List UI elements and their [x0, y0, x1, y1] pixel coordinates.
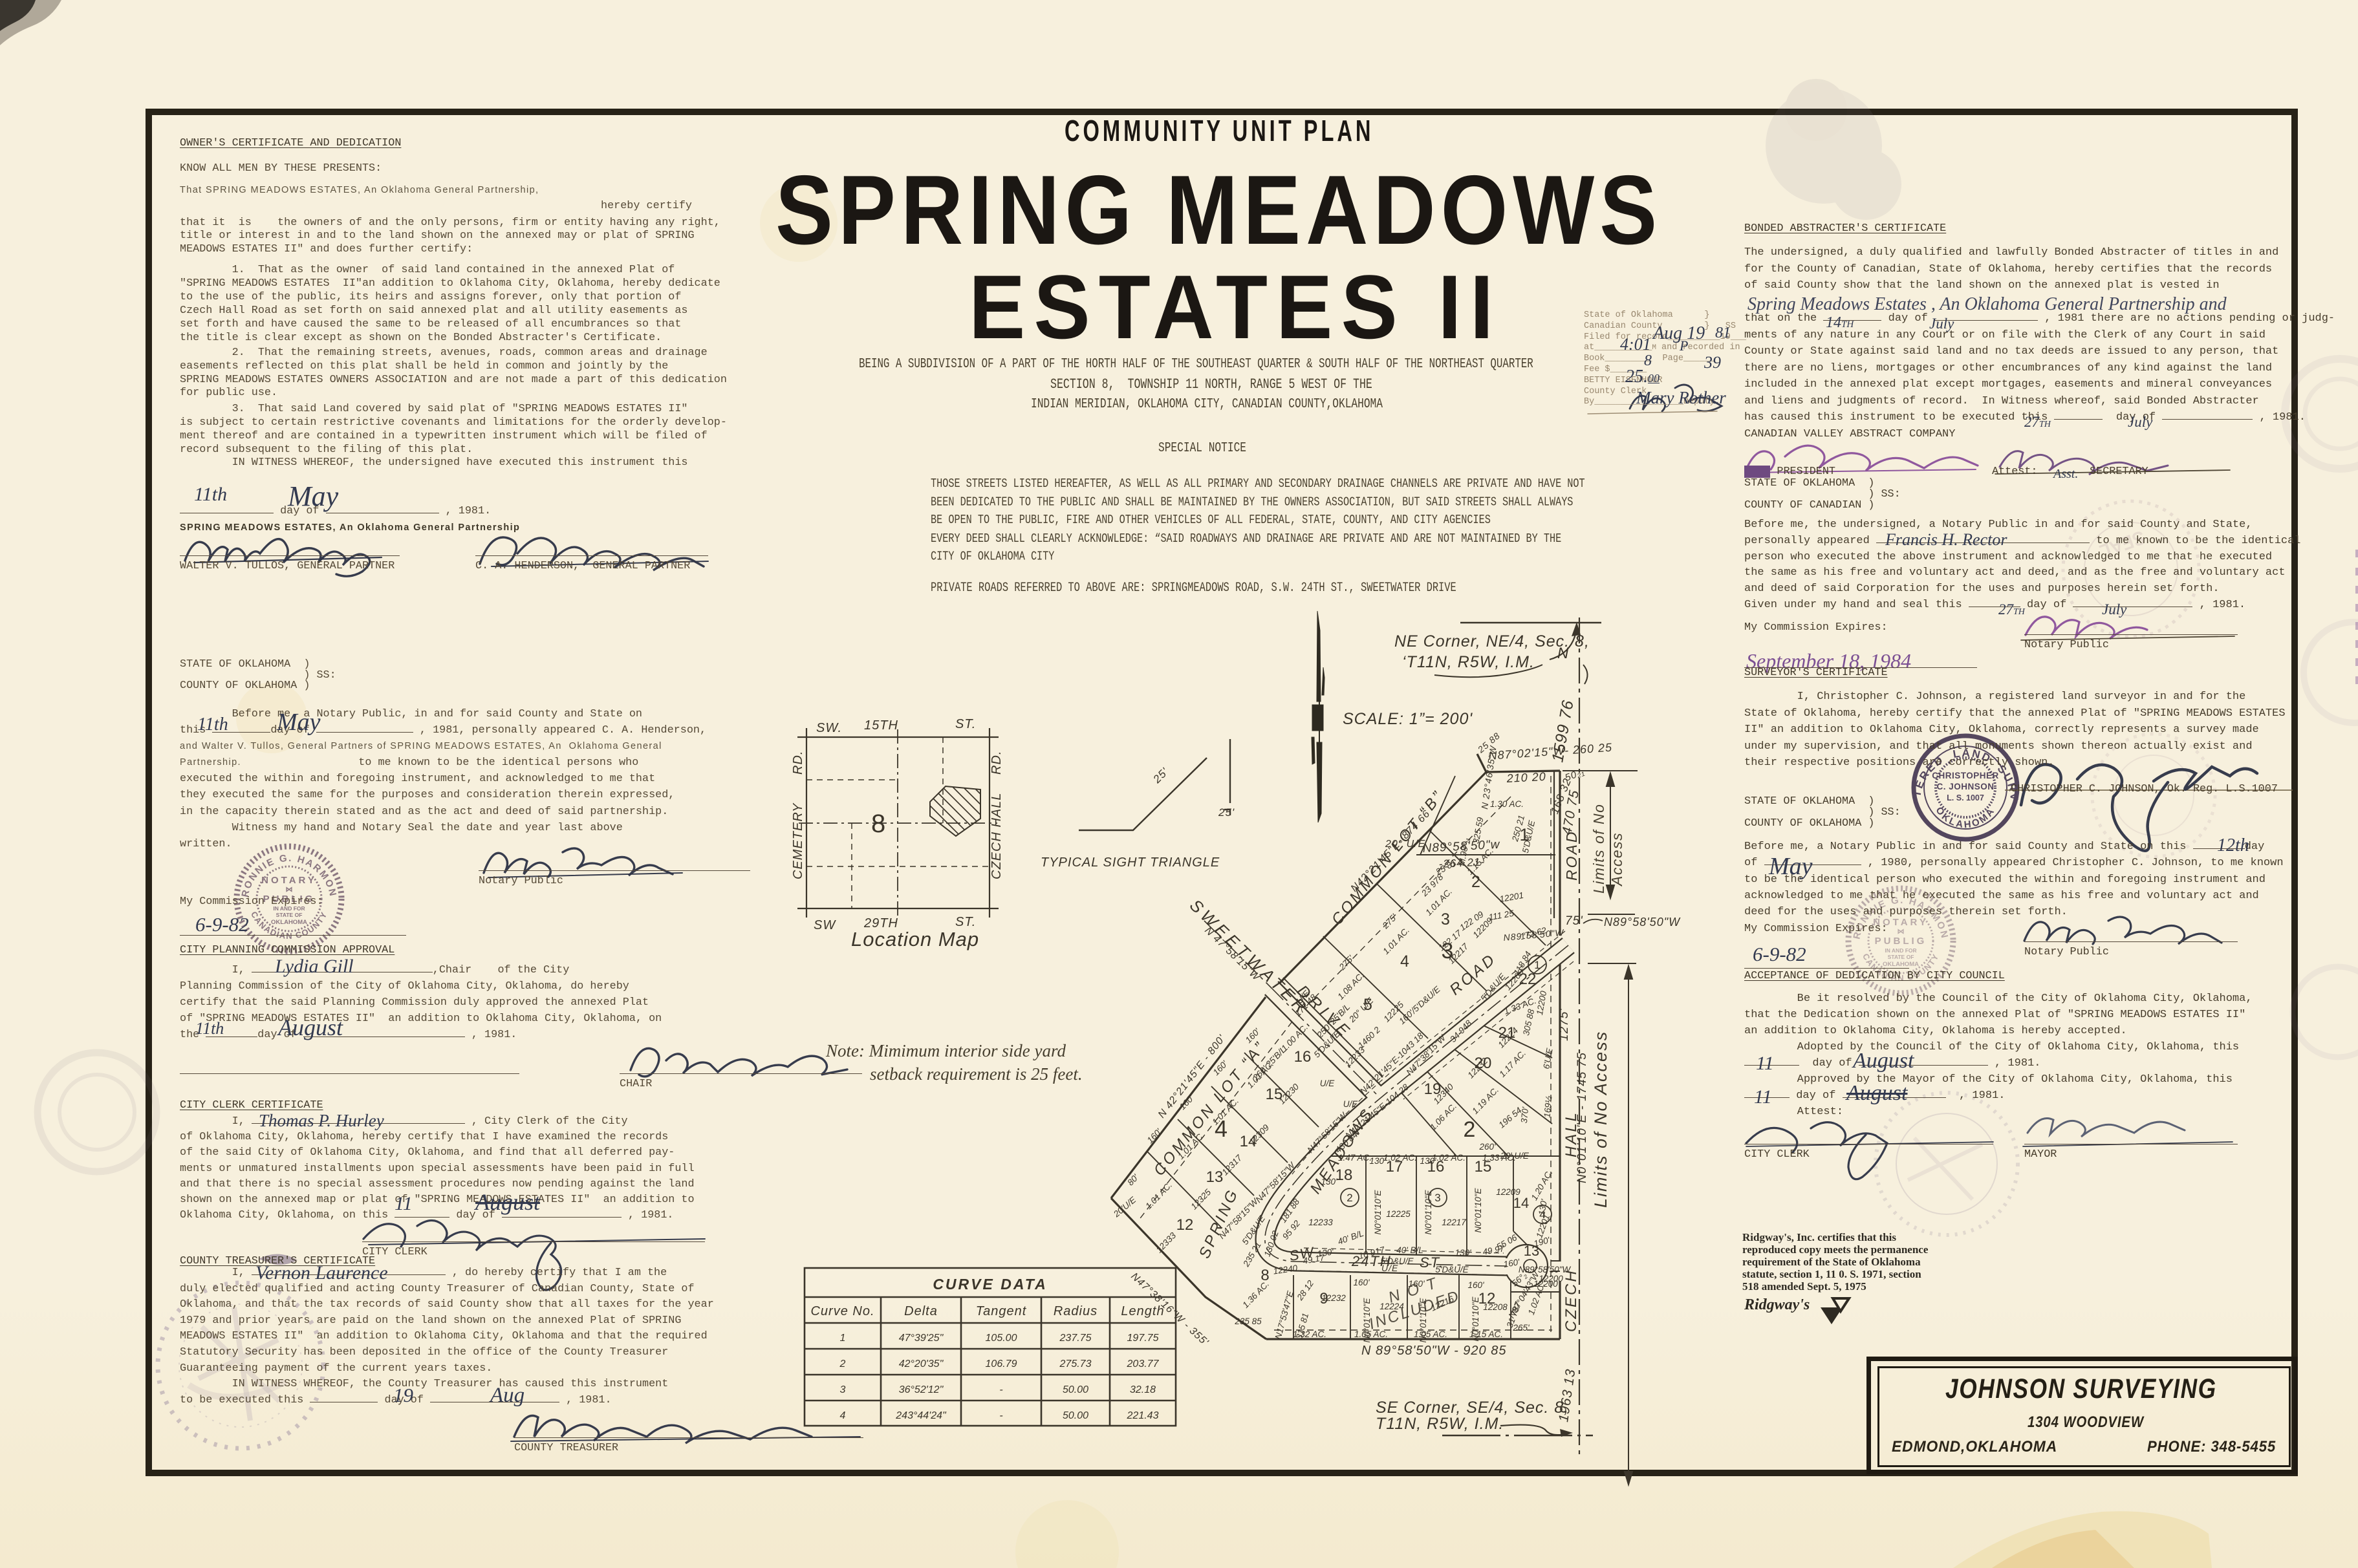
- svg-text:CURVE DATA: CURVE DATA: [933, 1276, 1047, 1293]
- svg-text:49 97: 49 97: [1482, 1243, 1505, 1257]
- svg-text:Radius: Radius: [1054, 1304, 1098, 1318]
- svg-text:130': 130': [1369, 1156, 1386, 1166]
- svg-text:N0°01'10"E: N0°01'10"E: [1423, 1189, 1433, 1234]
- svg-text:36°52'12": 36°52'12": [899, 1384, 944, 1395]
- svg-text:N42°21'45"E- 874 66: N42°21'45"E- 874 66: [1349, 808, 1433, 894]
- svg-text:4: 4: [1400, 952, 1409, 971]
- svg-text:12333: 12333: [1154, 1230, 1178, 1255]
- svg-text:12224: 12224: [1379, 1302, 1404, 1311]
- svg-text:20'U/E: 20'U/E: [1111, 1194, 1138, 1219]
- svg-text:⋈: ⋈: [1898, 928, 1905, 936]
- svg-text:SCALE: 1”= 200': SCALE: 1”= 200': [1343, 710, 1473, 728]
- svg-text:235 85: 235 85: [1234, 1316, 1262, 1326]
- svg-text:111 25: 111 25: [1488, 908, 1515, 923]
- svg-text:40' B/L: 40' B/L: [1336, 1229, 1365, 1247]
- svg-text:50.00: 50.00: [1063, 1410, 1088, 1421]
- svg-text:12233: 12233: [1308, 1218, 1333, 1227]
- svg-text:1.17 AC.: 1.17 AC.: [1497, 1048, 1528, 1079]
- svg-text:SWEETWATER: SWEETWATER: [1186, 896, 1313, 1019]
- svg-text:2: 2: [1347, 1192, 1352, 1204]
- svg-text:18: 18: [1336, 1166, 1353, 1184]
- svg-text:28 12: 28 12: [1295, 1278, 1316, 1302]
- svg-text:Location Map: Location Map: [851, 928, 979, 950]
- svg-text:1963 13: 1963 13: [1556, 1368, 1578, 1423]
- svg-text:47°39'25": 47°39'25": [899, 1333, 944, 1344]
- svg-text:275.73: 275.73: [1059, 1359, 1092, 1369]
- svg-text:Curve No.: Curve No.: [810, 1304, 874, 1318]
- svg-text:L. S. 1007: L. S. 1007: [1947, 793, 1984, 802]
- svg-text:2: 2: [839, 1359, 846, 1369]
- svg-text:N0°01'10"E: N0°01'10"E: [1362, 1297, 1372, 1342]
- svg-text:40' B/L: 40' B/L: [1396, 1245, 1423, 1255]
- svg-text:IN AND FOR: IN AND FOR: [1885, 947, 1916, 954]
- svg-text:Tangent: Tangent: [976, 1304, 1027, 1318]
- svg-text:12201: 12201: [1498, 890, 1524, 904]
- svg-text:160': 160': [1408, 1279, 1425, 1289]
- svg-text:U/E: U/E: [1343, 1099, 1359, 1109]
- svg-text:237.75: 237.75: [1059, 1333, 1092, 1344]
- svg-text:ROAD: ROAD: [1563, 830, 1580, 881]
- svg-text:160': 160': [1145, 1126, 1164, 1145]
- svg-text:1.02 AC.: 1.02 AC.: [1432, 1153, 1466, 1163]
- svg-text:14: 14: [1513, 1195, 1529, 1211]
- svg-text:T11N, R5W, I.M.: T11N, R5W, I.M.: [1376, 1415, 1504, 1433]
- svg-text:1.01 AC.: 1.01 AC.: [1381, 925, 1411, 956]
- svg-text:ST.: ST.: [955, 915, 976, 929]
- svg-text:SW: SW: [814, 918, 836, 932]
- svg-text:CZECH: CZECH: [1563, 1269, 1580, 1332]
- svg-text:20° U/E: 20° U/E: [1385, 839, 1425, 850]
- svg-text:STATE OF: STATE OF: [276, 912, 303, 918]
- svg-text:5'D&U/E: 5'D&U/E: [1380, 1256, 1414, 1266]
- svg-text:12201: 12201: [1534, 1213, 1552, 1239]
- svg-text:SW.: SW.: [816, 721, 842, 735]
- svg-text:75': 75': [1565, 914, 1583, 928]
- svg-text:160': 160': [1353, 1278, 1370, 1287]
- svg-text:1.36 AC.: 1.36 AC.: [1240, 1279, 1271, 1310]
- svg-text:1460 2: 1460 2: [1356, 1025, 1382, 1051]
- svg-text:3: 3: [840, 1384, 846, 1395]
- svg-text:CHRISTOPHER: CHRISTOPHER: [1932, 771, 1999, 780]
- svg-text:32.18: 32.18: [1130, 1384, 1156, 1395]
- svg-text:221.43: 221.43: [1127, 1410, 1159, 1421]
- svg-text:Limits of No: Limits of No: [1590, 804, 1607, 894]
- svg-text:5'D&U/E: 5'D&U/E: [1435, 1265, 1469, 1274]
- svg-text:275': 275': [1337, 953, 1356, 972]
- svg-text:130': 130': [1420, 1156, 1436, 1166]
- svg-text:1.06 AC.: 1.06 AC.: [1428, 1101, 1458, 1132]
- svg-text:42°20'35": 42°20'35": [899, 1359, 944, 1369]
- svg-text:1.30 AC.: 1.30 AC.: [1490, 799, 1524, 809]
- svg-text:105.00: 105.00: [986, 1333, 1017, 1344]
- svg-text:N0°01'10"E: N0°01'10"E: [1418, 1297, 1428, 1342]
- svg-text:260': 260': [1478, 1142, 1496, 1152]
- svg-text:210 20: 210 20: [1506, 770, 1546, 785]
- svg-text:NOTARY: NOTARY: [261, 875, 317, 886]
- svg-text:130': 130': [1321, 1177, 1337, 1187]
- svg-text:N0°01'10"E: N0°01'10"E: [1471, 1296, 1480, 1341]
- svg-text:N0°01'10"E: N0°01'10"E: [1473, 1187, 1483, 1232]
- svg-text:275': 275': [1380, 912, 1399, 930]
- svg-text:OKLAHOMA: OKLAHOMA: [1933, 805, 1997, 830]
- svg-text:1.08 AC.: 1.08 AC.: [1336, 971, 1366, 1002]
- svg-text:N17°53'47"E: N17°53'47"E: [1273, 1289, 1295, 1340]
- svg-text:203.77: 203.77: [1127, 1359, 1160, 1369]
- svg-text:PUBLIG: PUBLIG: [1875, 936, 1927, 947]
- svg-text:12208: 12208: [1483, 1302, 1508, 1312]
- svg-text:243°44'24": 243°44'24": [895, 1410, 947, 1421]
- svg-text:6'U/E: 6'U/E: [1541, 1047, 1555, 1070]
- svg-text:‘T11N, R5W, I.M.: ‘T11N, R5W, I.M.: [1402, 653, 1535, 671]
- svg-text:12225: 12225: [1386, 1209, 1411, 1219]
- svg-text:160': 160': [1467, 1280, 1484, 1290]
- svg-text:4: 4: [840, 1410, 846, 1421]
- svg-text:12200: 12200: [1539, 1274, 1563, 1283]
- svg-text:1.19 AC.: 1.19 AC.: [1470, 1085, 1500, 1116]
- svg-text:2: 2: [1464, 1117, 1476, 1142]
- svg-text:SE Corner, SE/4, Sec. 8,: SE Corner, SE/4, Sec. 8,: [1376, 1399, 1569, 1417]
- svg-text:12209: 12209: [1496, 1187, 1520, 1197]
- svg-text:N: N: [1557, 645, 1569, 662]
- svg-text:RD.: RD.: [791, 751, 805, 775]
- svg-text:Delta: Delta: [904, 1304, 938, 1318]
- svg-text:1: 1: [840, 1333, 846, 1344]
- svg-text:25': 25': [1218, 806, 1235, 819]
- svg-text:12200: 12200: [1535, 990, 1548, 1016]
- svg-text:N89°58'50"W: N89°58'50"W: [1519, 1265, 1572, 1274]
- svg-text:130': 130': [1537, 1198, 1549, 1216]
- svg-text:80': 80': [1125, 1172, 1140, 1187]
- svg-text:U/E: U/E: [1320, 1079, 1336, 1088]
- svg-text:8: 8: [871, 810, 885, 838]
- svg-text:⋈: ⋈: [286, 886, 293, 894]
- svg-text:12232: 12232: [1321, 1293, 1346, 1303]
- svg-text:RD.: RD.: [990, 751, 1004, 775]
- svg-text:130': 130': [1455, 1248, 1471, 1258]
- svg-text:CZECH HALL: CZECH HALL: [990, 793, 1004, 879]
- svg-text:1: 1: [1534, 959, 1540, 971]
- svg-text:3: 3: [1441, 910, 1450, 929]
- svg-text:169½: 169½: [1542, 1095, 1554, 1118]
- svg-text:1.02 AC.: 1.02 AC.: [1383, 1153, 1417, 1163]
- svg-text:305 88: 305 88: [1521, 1008, 1536, 1036]
- svg-text:Length: Length: [1121, 1304, 1164, 1318]
- svg-text:-: -: [999, 1410, 1002, 1421]
- svg-text:CEMETERY: CEMETERY: [791, 802, 805, 879]
- svg-text:Limits of No Access: Limits of No Access: [1591, 1031, 1610, 1208]
- svg-text:OKLAHOMA: OKLAHOMA: [271, 919, 307, 926]
- svg-text:15TH: 15TH: [864, 718, 898, 733]
- svg-text:1.47 AC.: 1.47 AC.: [1338, 1153, 1372, 1163]
- svg-text:12325: 12325: [1189, 1187, 1213, 1212]
- svg-text:20' U/E: 20' U/E: [1500, 1151, 1530, 1161]
- svg-text:-: -: [999, 1384, 1002, 1395]
- svg-text:TYPICAL SIGHT TRIANGLE: TYPICAL SIGHT TRIANGLE: [1041, 855, 1220, 870]
- svg-text:50₂₁: 50₂₁: [1564, 766, 1586, 784]
- svg-text:1.01 AC.: 1.01 AC.: [1143, 1180, 1174, 1211]
- svg-text:106.79: 106.79: [986, 1359, 1017, 1369]
- svg-text:N0°01'10"E - 1745 75: N0°01'10"E - 1745 75: [1575, 1052, 1589, 1183]
- svg-text:ST.: ST.: [955, 717, 976, 731]
- svg-text:3: 3: [1434, 1192, 1440, 1204]
- svg-text:16: 16: [1294, 1048, 1312, 1066]
- svg-text:N0°01'10"E: N0°01'10"E: [1373, 1189, 1383, 1234]
- svg-text:50.00: 50.00: [1063, 1384, 1088, 1395]
- svg-text:12217: 12217: [1442, 1218, 1466, 1227]
- svg-text:N89°58'50"W: N89°58'50"W: [1604, 916, 1681, 929]
- svg-text:25': 25': [1151, 766, 1171, 786]
- svg-text:C. JOHNSON: C. JOHNSON: [1936, 782, 1994, 791]
- svg-text:197.75: 197.75: [1127, 1333, 1159, 1344]
- svg-text:1275': 1275': [1557, 1008, 1571, 1041]
- svg-text:N 89°58'50"W - 920 85: N 89°58'50"W - 920 85: [1361, 1344, 1506, 1358]
- svg-text:12: 12: [1176, 1216, 1194, 1234]
